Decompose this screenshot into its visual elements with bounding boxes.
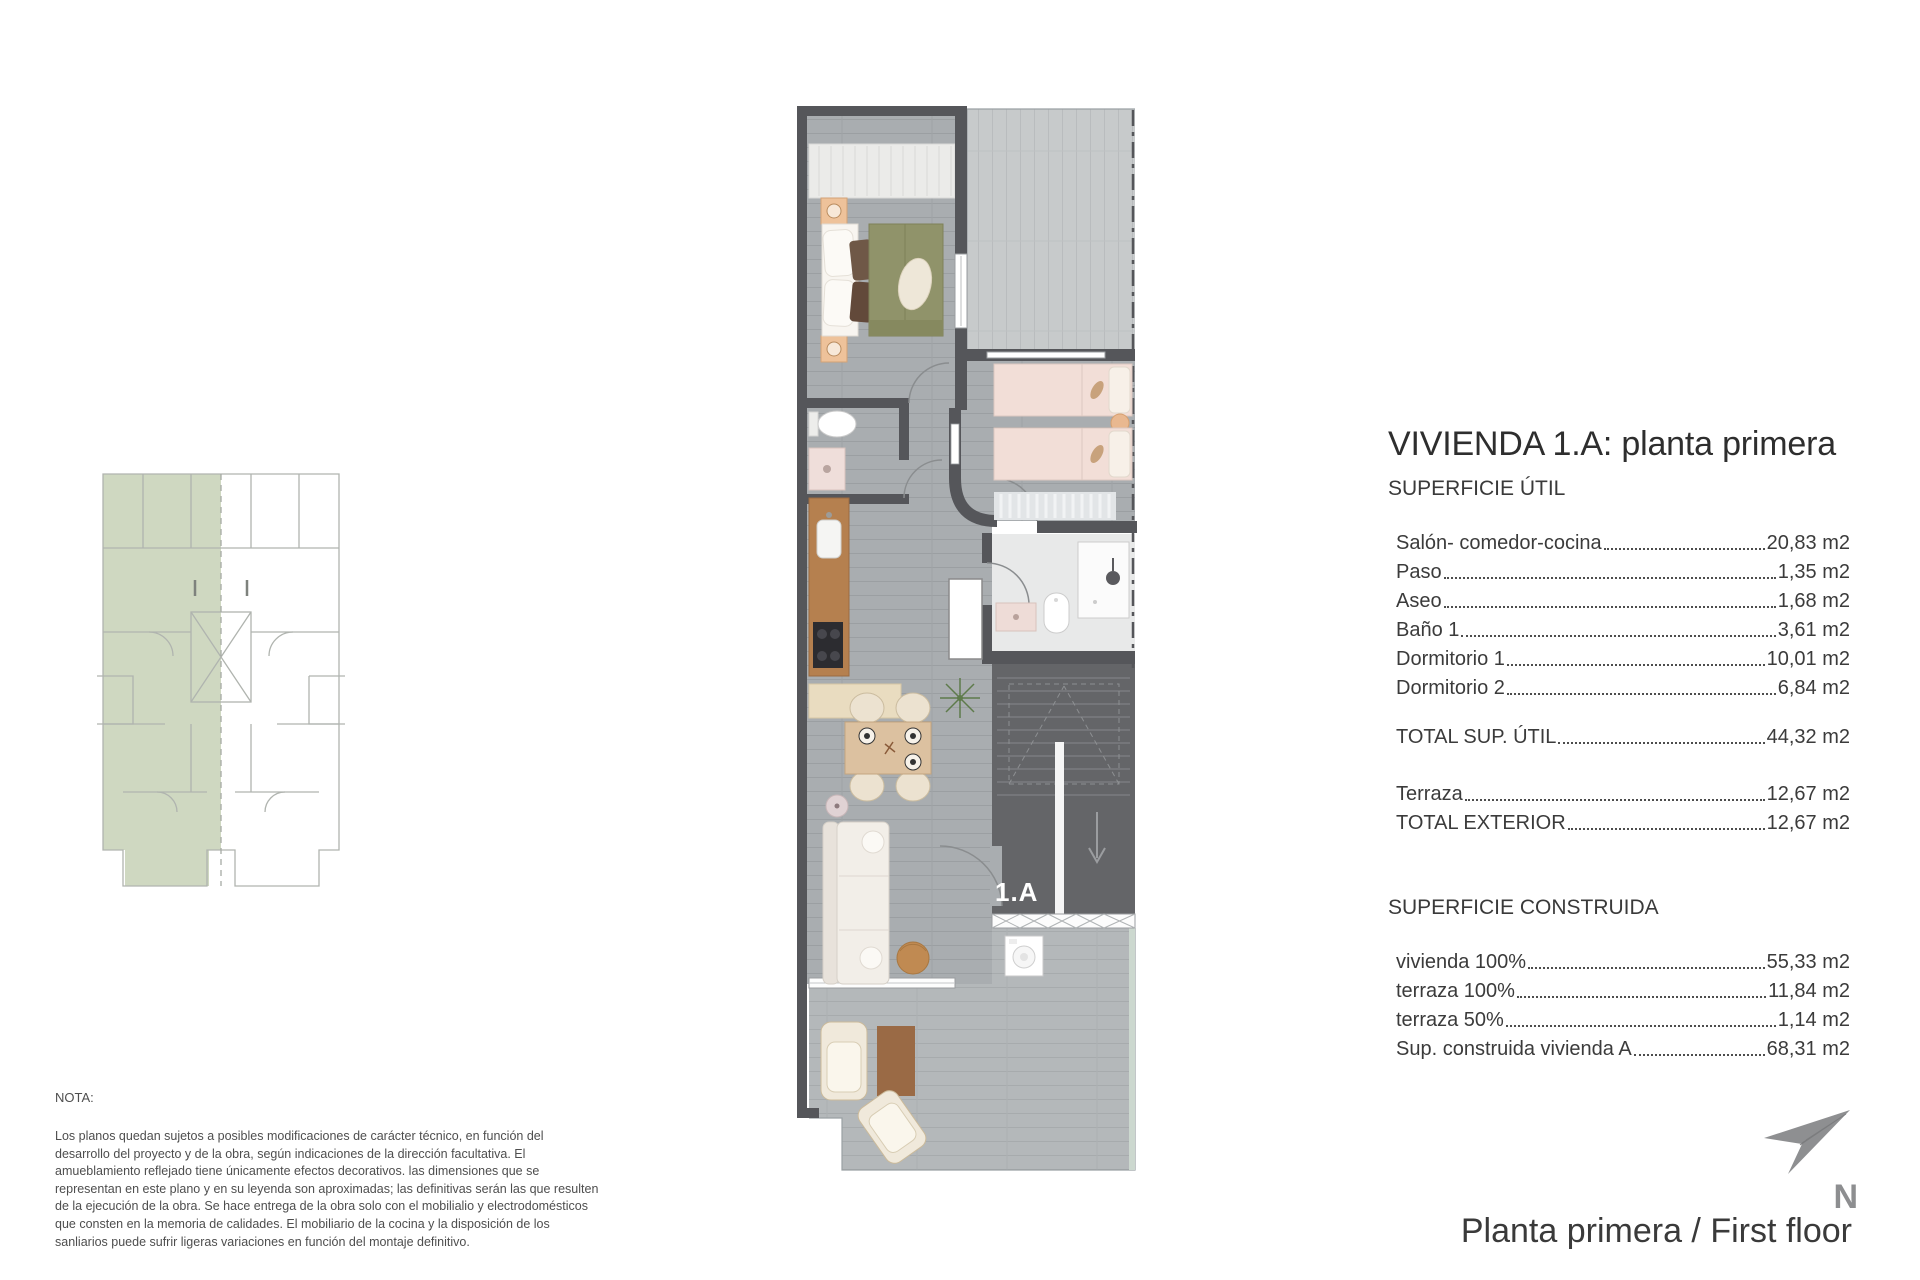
kitchen-sink <box>817 520 841 558</box>
dorm1-bed <box>822 224 943 336</box>
nota-block: NOTA: Los planos quedan sujetos a posibl… <box>55 1090 600 1251</box>
table-row: terraza 50% 1,14 m2 <box>1388 1003 1850 1032</box>
page-title: VIVIENDA 1.A: planta primera <box>1388 424 1850 464</box>
bath-basin <box>996 603 1036 631</box>
superficie-construida-heading: SUPERFICIE CONSTRUIDA <box>1388 895 1850 921</box>
dotted-leader <box>1507 664 1765 666</box>
aseo-basin <box>809 448 845 490</box>
dotted-leader <box>1507 693 1776 695</box>
row-label: TOTAL EXTERIOR <box>1396 812 1566 835</box>
dotted-leader <box>1604 548 1765 550</box>
plan-sheet-page: { "document": { "panel": { "title": "VIV… <box>0 0 1920 1280</box>
superficie-construida-table: vivienda 100% 55,33 m2 terraza 100% 11,8… <box>1388 945 1850 1061</box>
row-value: 3,61 m2 <box>1778 619 1850 642</box>
row-label: Paso <box>1396 561 1442 584</box>
table-row: Aseo 1,68 m2 <box>1388 584 1850 613</box>
unit-label: 1.A <box>995 877 1038 907</box>
glass-partition <box>949 579 982 659</box>
table-row: Terraza 12,67 m2 <box>1388 777 1850 806</box>
nota-body: Los planos quedan sujetos a posibles mod… <box>55 1128 600 1251</box>
north-label: N <box>1833 1178 1858 1216</box>
spacer <box>1388 700 1850 720</box>
table-row: terraza 100% 11,84 m2 <box>1388 974 1850 1003</box>
area-legend-panel: VIVIENDA 1.A: planta primera SUPERFICIE … <box>1388 424 1850 1061</box>
row-label: terraza 50% <box>1396 1009 1504 1032</box>
row-value: 12,67 m2 <box>1767 783 1850 806</box>
row-value: 44,32 m2 <box>1767 726 1850 749</box>
row-label: Sup. construida vivienda A <box>1396 1038 1632 1061</box>
bath-toilet <box>1044 593 1069 633</box>
terrace-rug <box>877 1026 915 1096</box>
side-table <box>826 795 848 817</box>
table-row: Sup. construida vivienda A 68,31 m2 <box>1388 1032 1850 1061</box>
table-row: Baño 1 3,61 m2 <box>1388 613 1850 642</box>
dotted-leader <box>1558 742 1764 744</box>
north-arrow-icon: N <box>1756 1104 1866 1216</box>
table-row: vivienda 100% 55,33 m2 <box>1388 945 1850 974</box>
row-value: 1,68 m2 <box>1778 590 1850 613</box>
cooktop <box>813 622 843 668</box>
total-exterior-row: TOTAL EXTERIOR 12,67 m2 <box>1388 806 1850 835</box>
dotted-leader <box>1461 635 1775 637</box>
dotted-leader <box>1528 967 1765 969</box>
row-value: 6,84 m2 <box>1778 677 1850 700</box>
superficie-util-heading: SUPERFICIE ÚTIL <box>1388 476 1850 502</box>
aseo-toilet <box>809 411 856 437</box>
plant <box>940 678 980 718</box>
row-value: 68,31 m2 <box>1767 1038 1850 1061</box>
row-value: 55,33 m2 <box>1767 951 1850 974</box>
row-label: Dormitorio 2 <box>1396 677 1505 700</box>
row-label: Baño 1 <box>1396 619 1459 642</box>
stair-stringer <box>1055 742 1064 914</box>
row-label: Salón- comedor-cocina <box>1396 532 1602 555</box>
dotted-leader <box>1444 577 1776 579</box>
total-util-row: TOTAL SUP. ÚTIL 44,32 m2 <box>1388 720 1850 749</box>
row-label: Dormitorio 1 <box>1396 648 1505 671</box>
table-row: Dormitorio 2 6,84 m2 <box>1388 671 1850 700</box>
floor-plan: 1.A <box>797 106 1141 1188</box>
row-value: 1,35 m2 <box>1778 561 1850 584</box>
kitchen-counter <box>809 498 849 676</box>
dotted-leader <box>1634 1054 1765 1056</box>
dotted-leader <box>1465 799 1765 801</box>
row-label: Terraza <box>1396 783 1463 806</box>
floor-title: Planta primera / First floor <box>1440 1212 1852 1251</box>
row-label: TOTAL SUP. ÚTIL <box>1396 726 1556 749</box>
site-key-plan <box>95 462 347 895</box>
coffee-table <box>897 942 929 974</box>
row-value: 20,83 m2 <box>1767 532 1850 555</box>
dotted-leader <box>1444 606 1776 608</box>
upper-terrace <box>967 109 1135 349</box>
row-label: vivienda 100% <box>1396 951 1526 974</box>
row-label: terraza 100% <box>1396 980 1515 1003</box>
table-row: Salón- comedor-cocina 20,83 m2 <box>1388 526 1850 555</box>
glass-balustrade <box>1129 928 1135 1170</box>
terrace-window-band <box>992 914 1135 928</box>
nota-heading: NOTA: <box>55 1090 600 1105</box>
site-plan-highlight-unit-a <box>103 474 221 886</box>
row-value: 11,84 m2 <box>1768 980 1850 1003</box>
spacer <box>1388 749 1850 777</box>
dorm2-rug <box>994 492 1116 520</box>
terrace-lounge-chair-1 <box>821 1022 867 1100</box>
dotted-leader <box>1568 828 1765 830</box>
spacer <box>1388 835 1850 883</box>
dotted-leader <box>1506 1025 1776 1027</box>
washing-machine <box>1005 936 1043 976</box>
superficie-util-table: Salón- comedor-cocina 20,83 m2 Paso 1,35… <box>1388 526 1850 835</box>
table-row: Dormitorio 1 10,01 m2 <box>1388 642 1850 671</box>
dotted-leader <box>1517 996 1766 998</box>
table-row: Paso 1,35 m2 <box>1388 555 1850 584</box>
row-value: 1,14 m2 <box>1778 1009 1850 1032</box>
row-value: 12,67 m2 <box>1767 812 1850 835</box>
wardrobe <box>809 144 955 198</box>
sofa <box>823 822 889 984</box>
row-label: Aseo <box>1396 590 1442 613</box>
row-value: 10,01 m2 <box>1767 648 1850 671</box>
shower <box>1078 542 1129 618</box>
